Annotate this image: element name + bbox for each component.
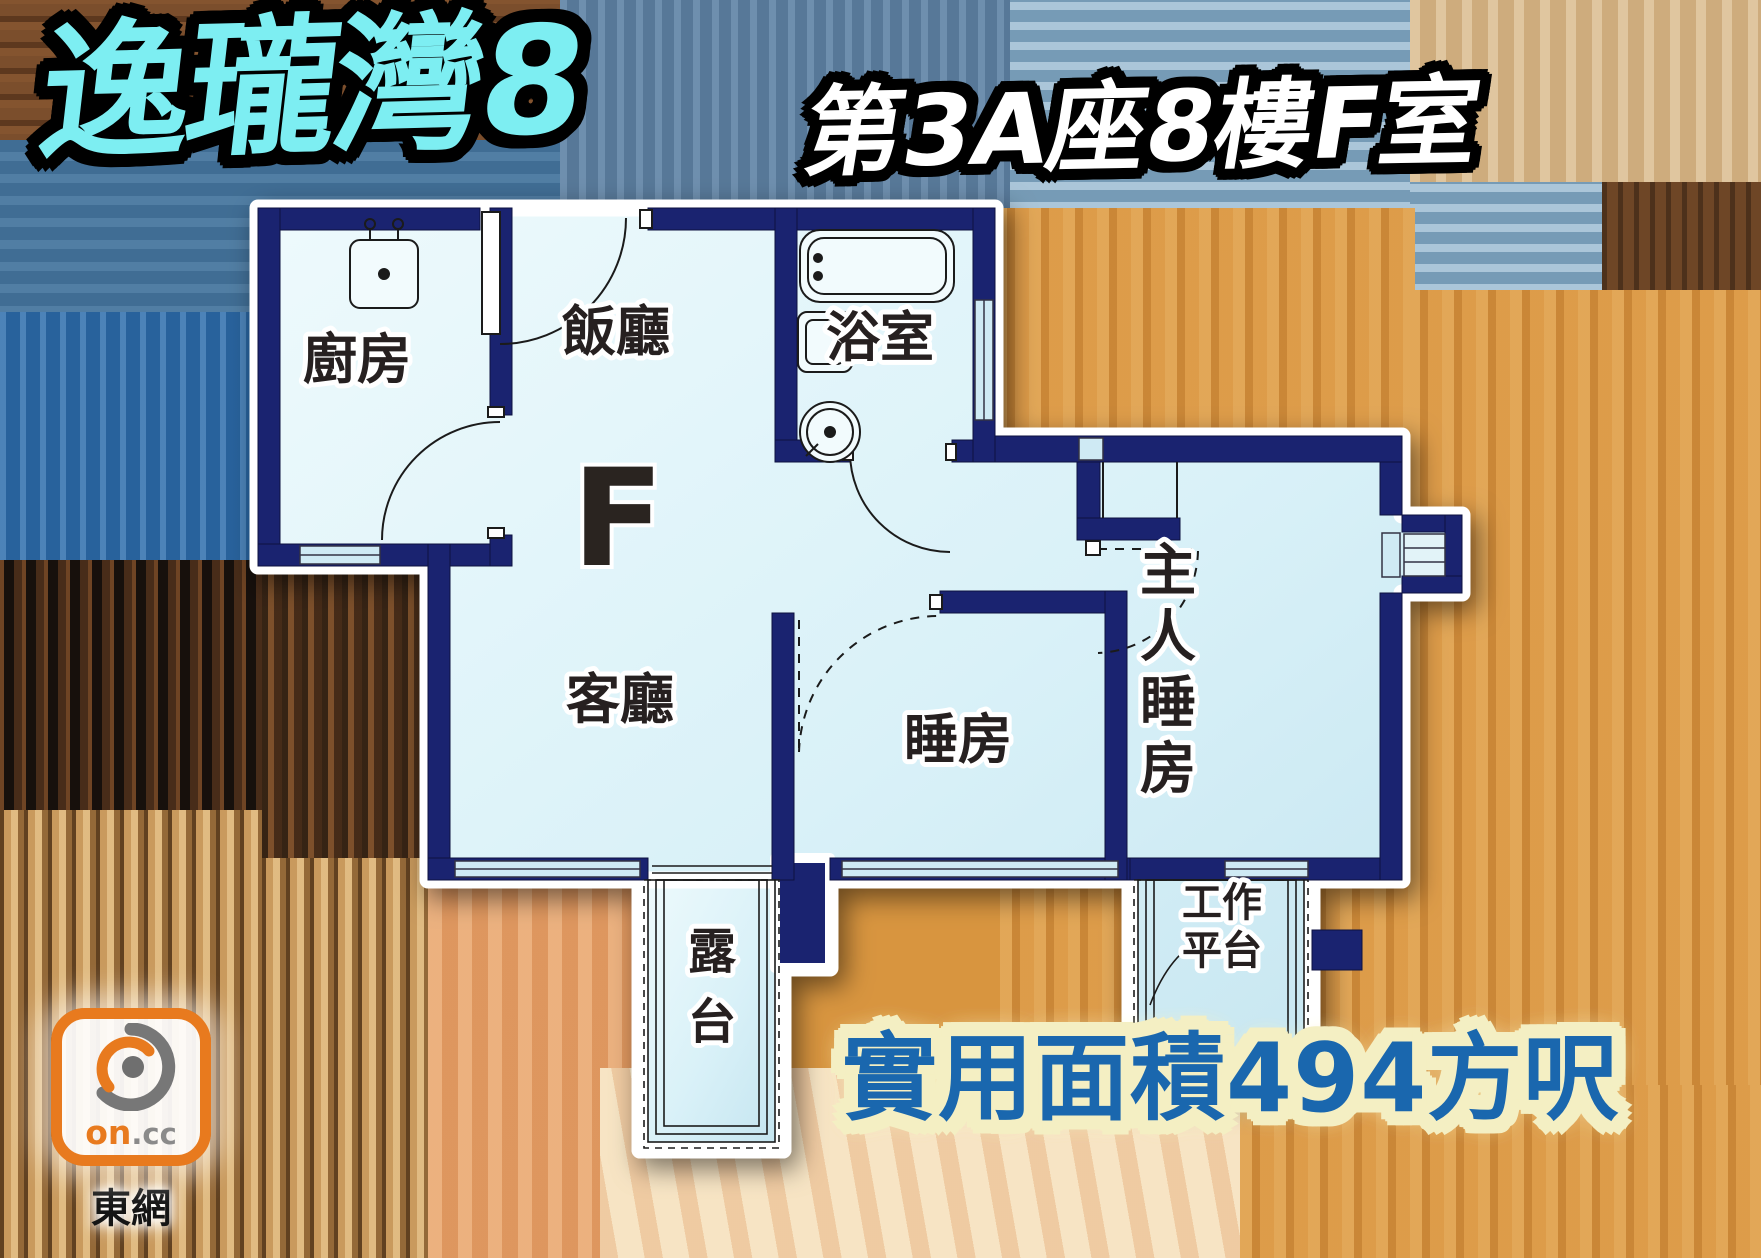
infographic-canvas: 廚房 飯廳 浴室 F 客廳 睡房 主 人 睡 房 露 台 工作 平台 逸瓏灣8 … bbox=[0, 0, 1761, 1258]
label-bedroom: 睡房 bbox=[904, 708, 1012, 771]
label-utility-line-1: 工作 bbox=[1182, 880, 1262, 926]
label-dining: 飯廳 bbox=[562, 300, 670, 363]
label-utility-line-2: 平台 bbox=[1182, 928, 1262, 974]
label-balcony-char-2: 台 bbox=[688, 994, 736, 1050]
oncc-logo-badge: on.cc bbox=[51, 1008, 211, 1166]
unit-subtitle: 第3A座8樓F室 bbox=[796, 42, 1492, 196]
label-master-char-3: 睡 bbox=[1140, 671, 1196, 736]
oncc-eye-icon bbox=[73, 1023, 189, 1111]
oncc-wordmark-cc: .cc bbox=[131, 1117, 176, 1151]
label-master-bedroom: 主 人 睡 房 bbox=[1140, 539, 1196, 802]
label-master-char-1: 主 bbox=[1140, 539, 1196, 604]
oncc-wordmark-on: on bbox=[85, 1113, 131, 1152]
label-living: 客廳 bbox=[566, 668, 674, 731]
label-master-char-2: 人 bbox=[1140, 605, 1196, 670]
label-flat-letter: F bbox=[572, 440, 664, 597]
page-title: 逸瓏灣8 bbox=[32, 3, 590, 175]
area-banner: 實用面積494方呎 bbox=[842, 1002, 1619, 1139]
label-bathroom: 浴室 bbox=[826, 306, 934, 369]
label-balcony-char-1: 露 bbox=[688, 924, 737, 980]
oncc-logo-block: on.cc 東網 bbox=[46, 1008, 216, 1234]
oncc-wordmark: on.cc bbox=[62, 1116, 200, 1149]
label-master-char-4: 房 bbox=[1140, 737, 1196, 802]
label-kitchen: 廚房 bbox=[303, 328, 411, 391]
site-name: 東網 bbox=[46, 1176, 216, 1234]
